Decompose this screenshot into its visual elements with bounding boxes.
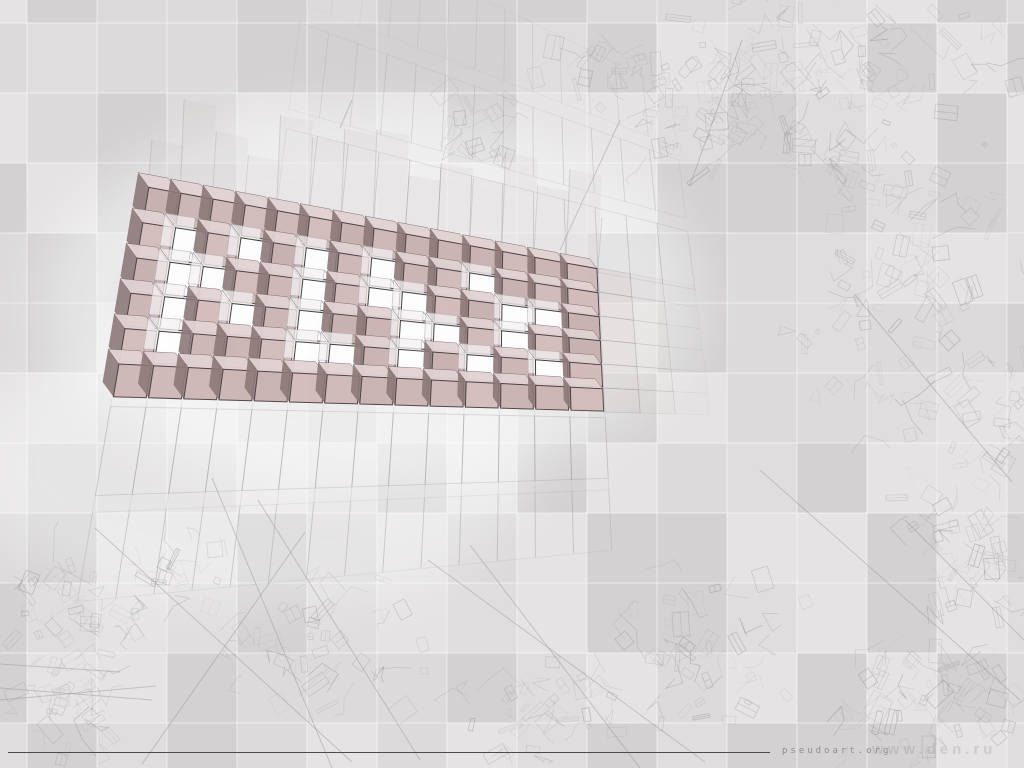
footer-rule — [8, 752, 770, 753]
cube-filled — [493, 373, 534, 409]
wallpaper: pseudoart.org www.den.ru — [0, 0, 1024, 768]
artwork-canvas — [0, 0, 1024, 768]
cube-filled — [563, 377, 604, 411]
cube-filled — [528, 375, 568, 410]
cube-filled — [422, 369, 464, 408]
cube-filled — [457, 371, 498, 408]
watermark: www.den.ru — [872, 741, 996, 758]
